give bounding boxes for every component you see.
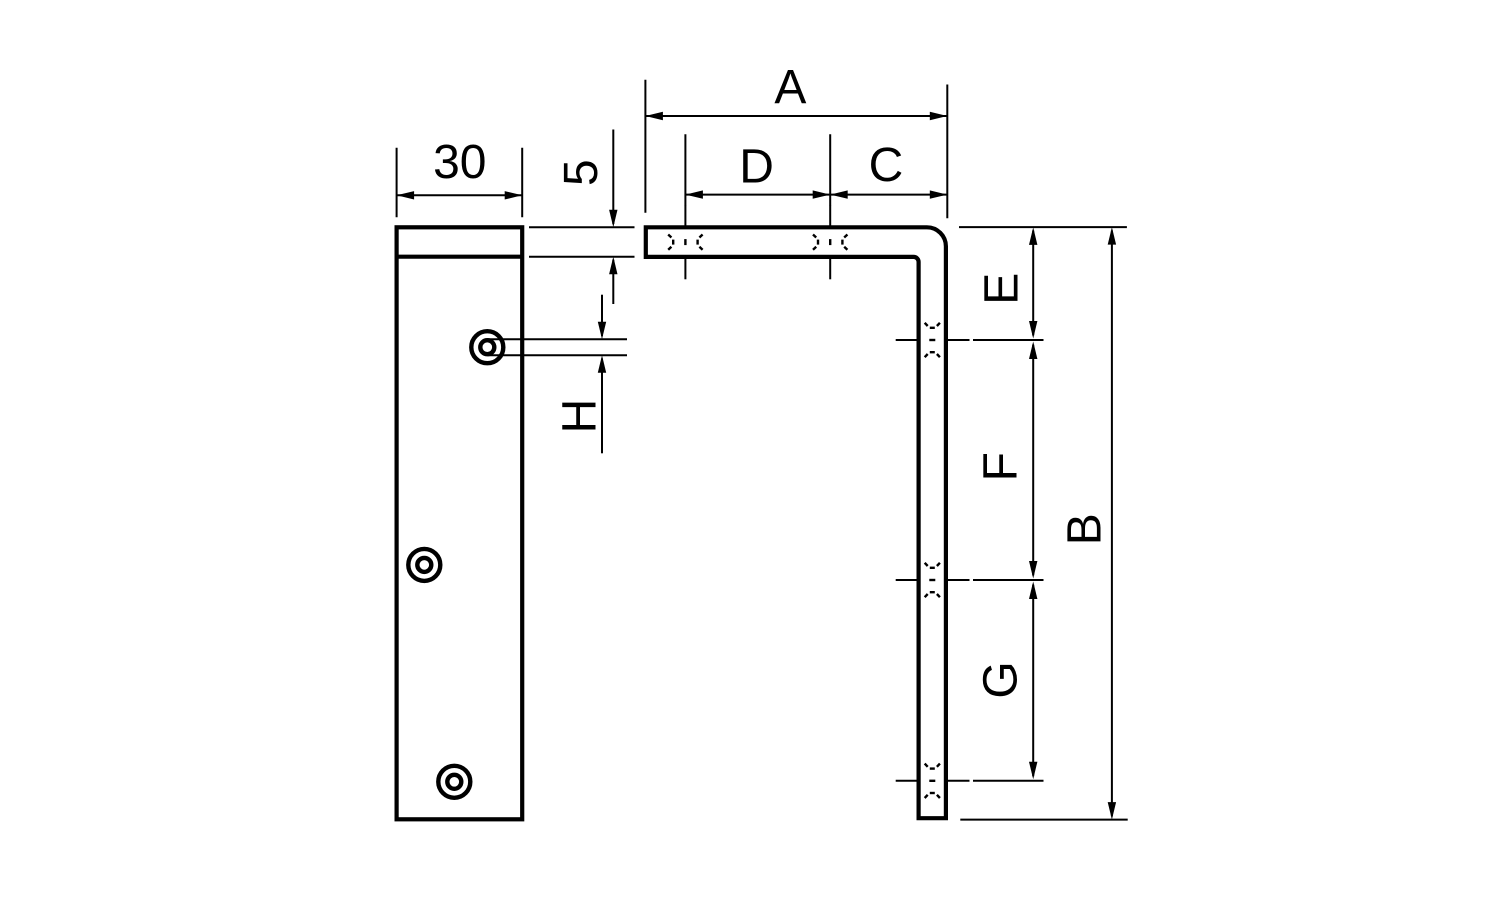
svg-text:B: B <box>1059 513 1112 545</box>
svg-text:G: G <box>975 661 1028 698</box>
svg-text:E: E <box>976 273 1029 305</box>
svg-text:D: D <box>739 141 774 194</box>
svg-text:30: 30 <box>433 136 486 189</box>
svg-text:F: F <box>975 452 1028 481</box>
svg-text:C: C <box>869 139 904 192</box>
svg-text:A: A <box>774 61 806 114</box>
svg-text:H: H <box>553 399 606 434</box>
svg-text:5: 5 <box>555 159 608 186</box>
